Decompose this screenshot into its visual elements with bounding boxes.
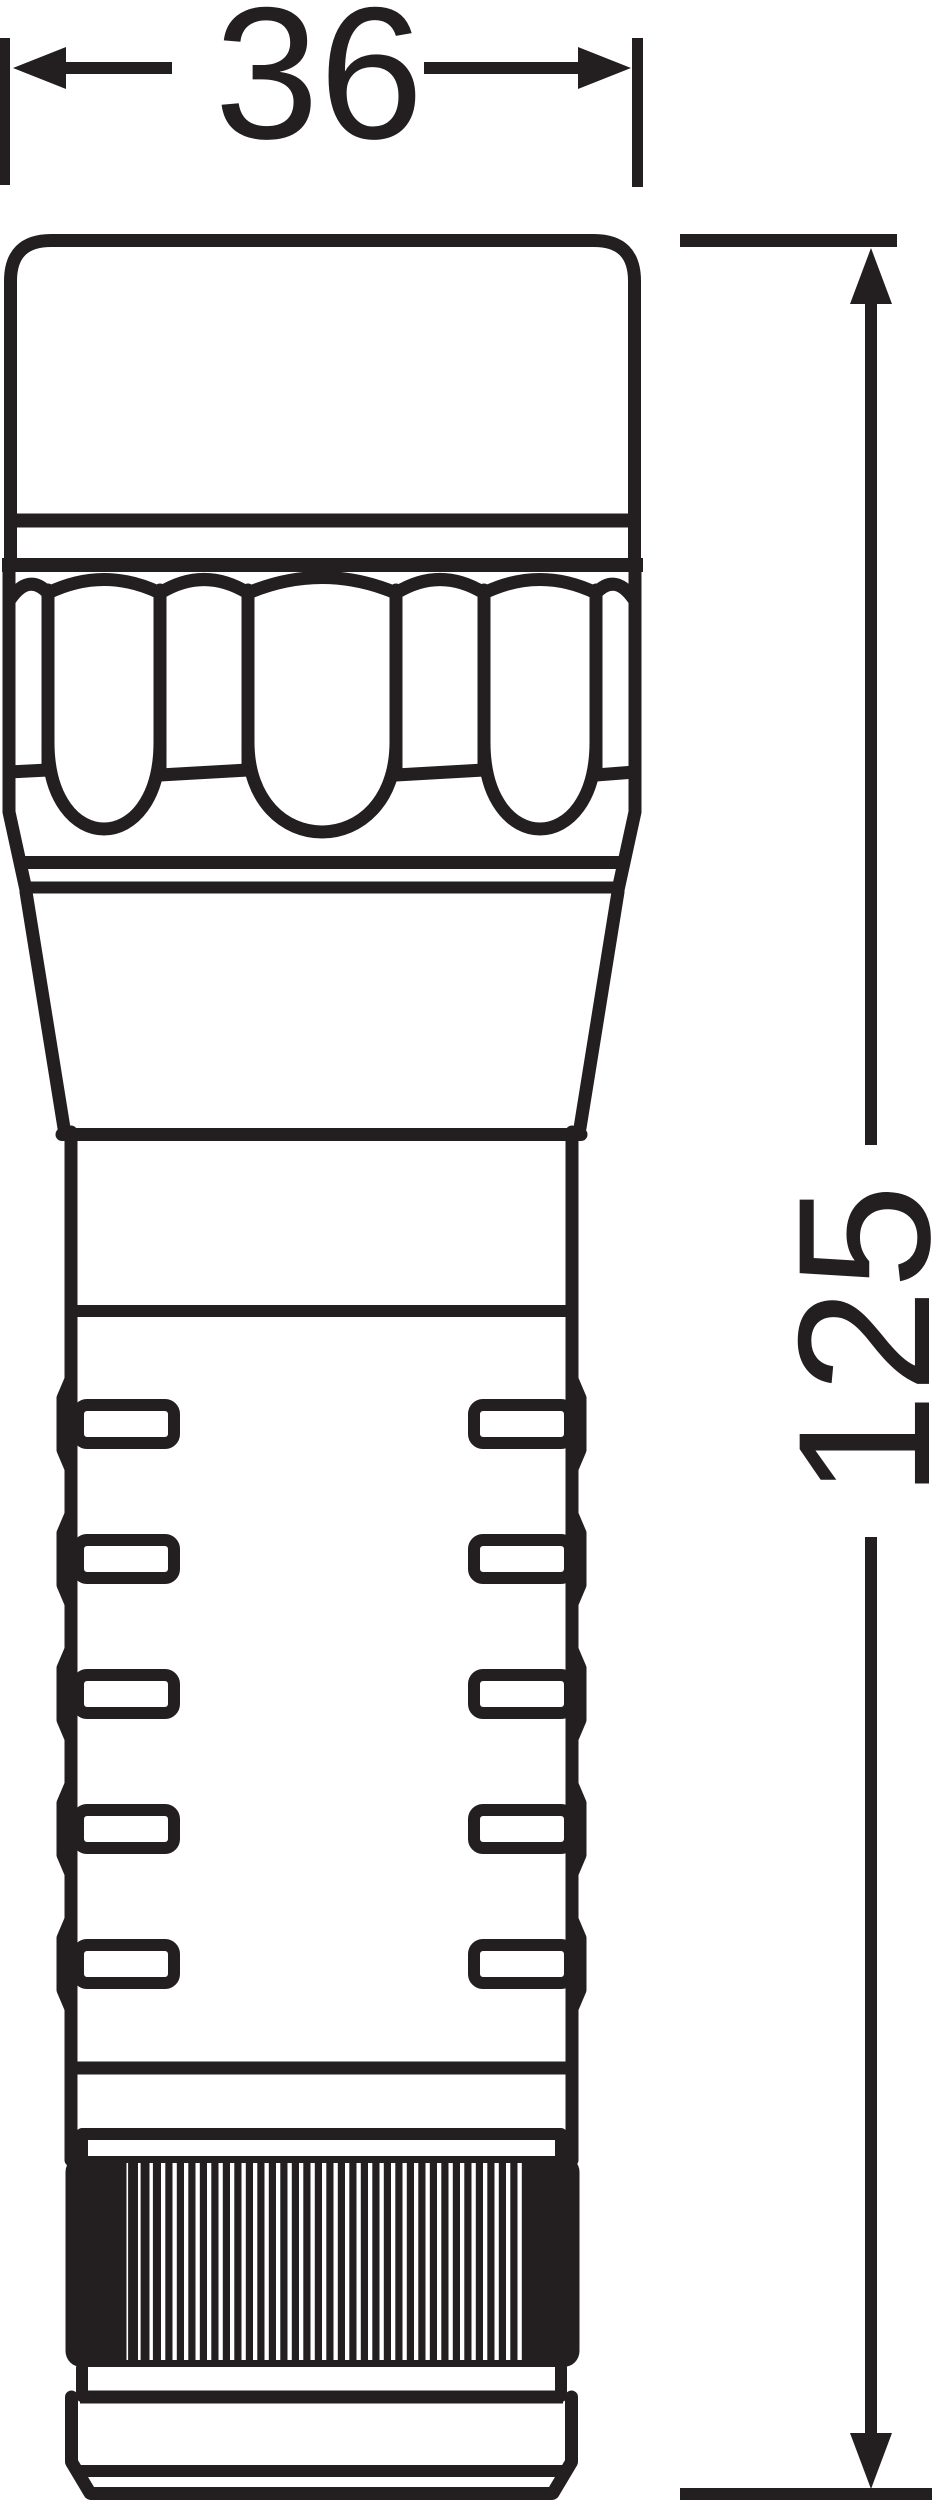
- tailcap-left-edge: [72, 2397, 91, 2493]
- knurl-stripe: [138, 2163, 141, 2360]
- grip-slot-left: [78, 1810, 174, 1848]
- height-dimension: 125: [680, 241, 932, 2495]
- knurl-stripe: [345, 2163, 349, 2360]
- grip-slot-left: [78, 1405, 174, 1443]
- height-dimension-label: 125: [759, 1184, 932, 1498]
- knurl-stripe: [495, 2163, 499, 2360]
- head-cap-outline: [11, 241, 635, 524]
- grip-slot-left: [78, 1945, 174, 1983]
- knurl-stripe: [299, 2163, 303, 2360]
- tail-cap: [72, 2368, 572, 2494]
- knurl-stripe: [127, 2163, 129, 2360]
- knurl-stripe: [173, 2163, 177, 2360]
- flashlight-head: [4, 241, 641, 561]
- bezel-flute-top-wave: [9, 578, 635, 602]
- grip-slot-right: [474, 1405, 570, 1443]
- knurl-stripe: [506, 2163, 510, 2360]
- barrel: [63, 1132, 581, 2160]
- tailcap-right-edge: [553, 2397, 572, 2493]
- grip-groove-rows: [63, 1378, 581, 2010]
- knurl-stripe: [196, 2163, 200, 2360]
- taper-left-edge: [26, 892, 64, 1128]
- knurl-stripe: [311, 2163, 315, 2360]
- taper-right-edge: [580, 892, 618, 1128]
- bezel-ring: [2, 565, 643, 890]
- flute-tooth-bottom: [396, 770, 484, 775]
- knurl-stripe: [253, 2163, 257, 2360]
- knurl-stripe: [288, 2163, 292, 2360]
- grip-slot-right: [474, 1540, 570, 1578]
- height-arrow-up-icon: [850, 248, 892, 304]
- flashlight-outline: [2, 241, 643, 2494]
- knurl-stripe: [184, 2163, 188, 2360]
- knurl-stripe: [322, 2163, 326, 2360]
- knurl-stripe: [207, 2163, 211, 2360]
- knurl-stripes: [127, 2163, 522, 2360]
- knurl-stripe: [449, 2163, 453, 2360]
- knurl-stripe: [391, 2163, 395, 2360]
- knurl-stripe: [219, 2163, 223, 2360]
- knurl-stripe: [380, 2163, 384, 2360]
- width-dimension: 36: [5, 0, 638, 187]
- grip-slot-right: [474, 1810, 570, 1848]
- width-dimension-label: 36: [214, 0, 423, 178]
- knurl-stripe: [414, 2163, 418, 2360]
- width-arrow-right-icon: [578, 47, 631, 89]
- knurl-stripe: [161, 2163, 165, 2360]
- grip-slot-left: [78, 1675, 174, 1713]
- knurl-stripe: [357, 2163, 361, 2360]
- knurl-stripe: [403, 2163, 407, 2360]
- knurl-stripe: [150, 2163, 153, 2360]
- knurl-stripe: [265, 2163, 269, 2360]
- knurl-stripe: [368, 2163, 372, 2360]
- height-arrow-down-icon: [850, 2433, 892, 2489]
- flute-tooth-bottom: [160, 770, 248, 775]
- knurl-stripe: [426, 2163, 430, 2360]
- neck-taper: [26, 892, 618, 1135]
- knurl-stripe: [483, 2163, 487, 2360]
- knurl-stripe: [242, 2163, 246, 2360]
- technical-drawing-flashlight: 36 125: [0, 0, 932, 2500]
- grip-slot-right: [474, 1675, 570, 1713]
- bezel-left-edge: [9, 565, 26, 890]
- flute-lobe-bottom: [484, 742, 596, 829]
- grip-slot-right: [474, 1945, 570, 1983]
- flute-lobe-bottom: [248, 742, 396, 832]
- knurl-stripe: [518, 2163, 522, 2360]
- knurl-stripe: [460, 2163, 464, 2360]
- flute-lobe-bottom: [48, 742, 160, 829]
- bezel-right-edge: [618, 565, 635, 890]
- knurl-stripe: [230, 2163, 234, 2360]
- knurl-stripe: [472, 2163, 476, 2360]
- grip-slot-left: [78, 1540, 174, 1578]
- knurl-stripe: [334, 2163, 338, 2360]
- knurled-grip: [66, 2156, 580, 2367]
- knurl-stripe: [276, 2163, 280, 2360]
- knurl-stripe: [437, 2163, 441, 2360]
- width-arrow-left-icon: [13, 47, 66, 89]
